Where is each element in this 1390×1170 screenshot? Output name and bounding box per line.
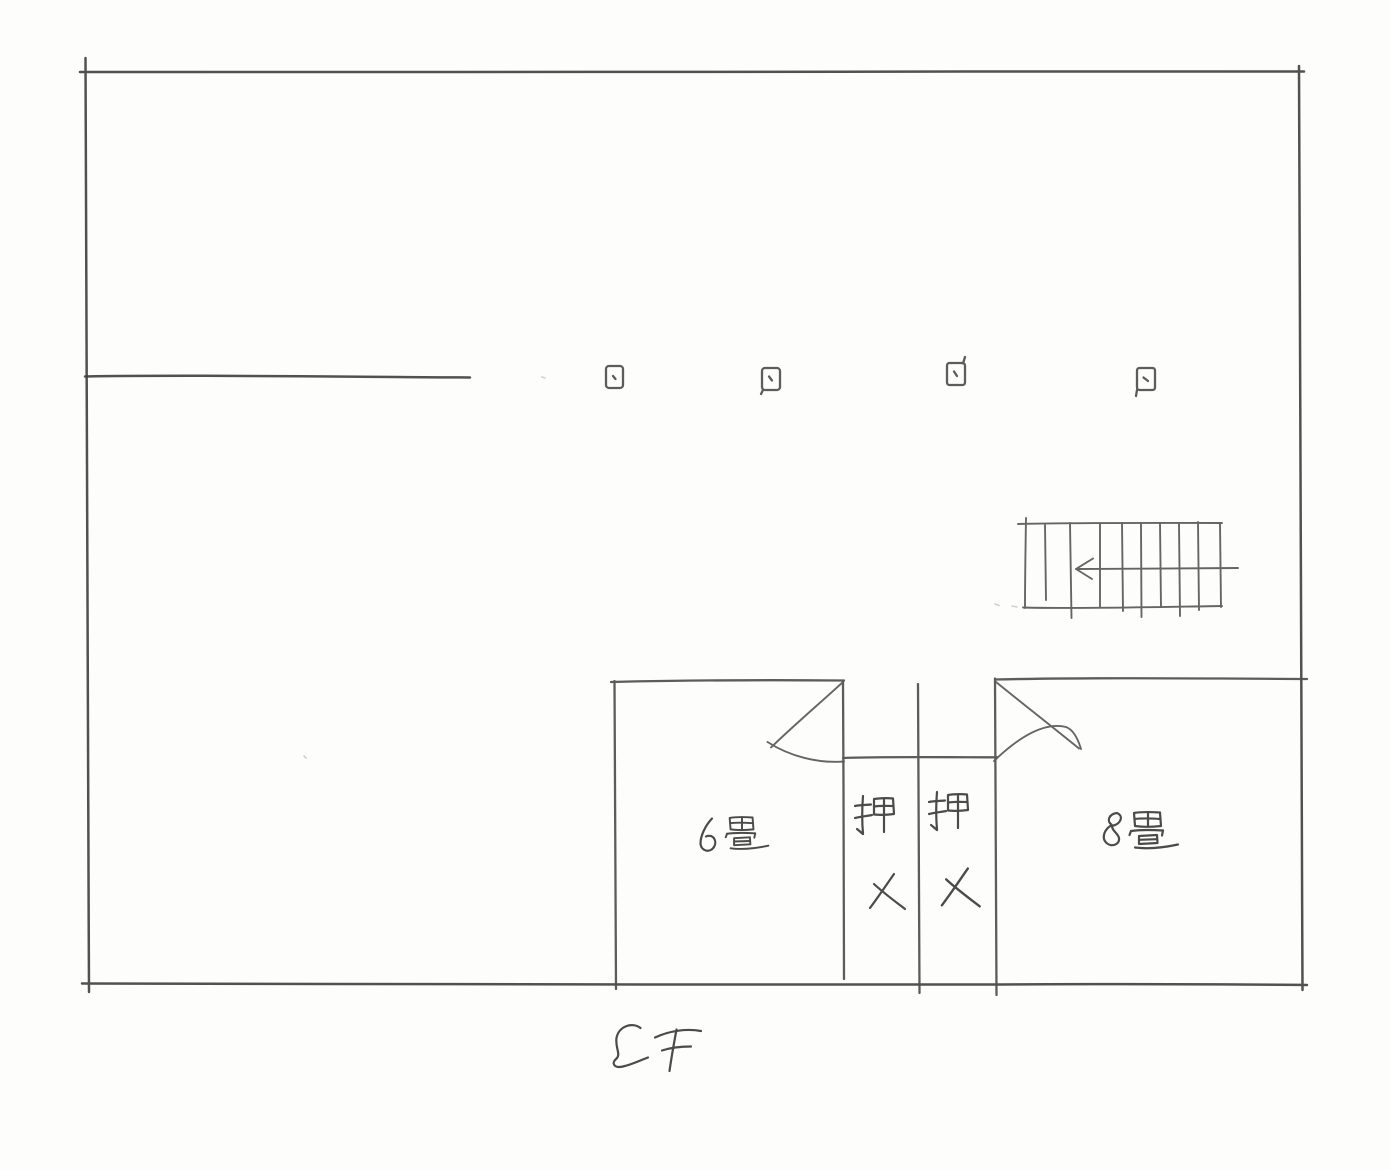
stair-treads [1045, 522, 1199, 618]
column-square-marker-2 [761, 368, 780, 394]
column-square-marker-4 [1136, 368, 1155, 396]
door-leaf [771, 682, 843, 748]
kanji-oshi [855, 796, 894, 834]
room-8jo-label [1104, 812, 1178, 848]
pencil-smudges [304, 377, 1017, 758]
closet-2-label [929, 792, 980, 906]
room-walls [611, 678, 1307, 995]
wall-closet-divider [918, 684, 920, 993]
wall-8jo-top [995, 678, 1307, 679]
door-arc [768, 742, 845, 762]
kanji-tatami [1130, 812, 1179, 848]
outer-wall-bottom [82, 983, 1307, 985]
column-square-marker-3 [947, 357, 965, 385]
stair-outline-left [1025, 518, 1026, 608]
outer-wall-right [1299, 66, 1303, 990]
labels [614, 792, 1178, 1071]
wall-closet-front [843, 757, 997, 758]
letter-F-bar [655, 1030, 701, 1038]
door-arc [994, 726, 1081, 761]
column-square-marker-1 [606, 366, 623, 388]
column-markers [606, 357, 1155, 396]
door-leaf [996, 682, 1079, 749]
letter-F-mid [662, 1047, 691, 1051]
floor-plan-sketch [0, 0, 1390, 1170]
floor-plan-page: 6畳 押入 押入 8畳 2F [0, 0, 1390, 1170]
wall-6jo-top [611, 680, 844, 682]
kanji-tatami [726, 817, 769, 849]
outer-wall-top [80, 71, 1304, 72]
stair-outline-right [1220, 523, 1221, 607]
door-swing-left [768, 682, 845, 762]
kanji-iri [870, 874, 905, 909]
letter-F-stem [670, 1030, 677, 1072]
staircase [1018, 518, 1238, 618]
outer-wall-left [86, 58, 90, 992]
wall-6jo-closet [843, 681, 844, 979]
door-swing-right [994, 682, 1081, 761]
wall-6jo-left [615, 681, 617, 989]
kanji-iri [942, 869, 980, 907]
stair-outline-top [1018, 523, 1222, 524]
kanji-oshi [929, 792, 968, 830]
room-6jo-label [701, 817, 769, 851]
digit-2 [614, 1025, 648, 1067]
digit-8 [1104, 813, 1121, 845]
floor-label-2f [614, 1025, 701, 1071]
door-swings [768, 682, 1082, 762]
wall-closet-8jo [995, 679, 997, 996]
interior-wall-stub [85, 376, 470, 378]
digit-6 [701, 819, 716, 851]
closet-1-label [855, 796, 905, 909]
